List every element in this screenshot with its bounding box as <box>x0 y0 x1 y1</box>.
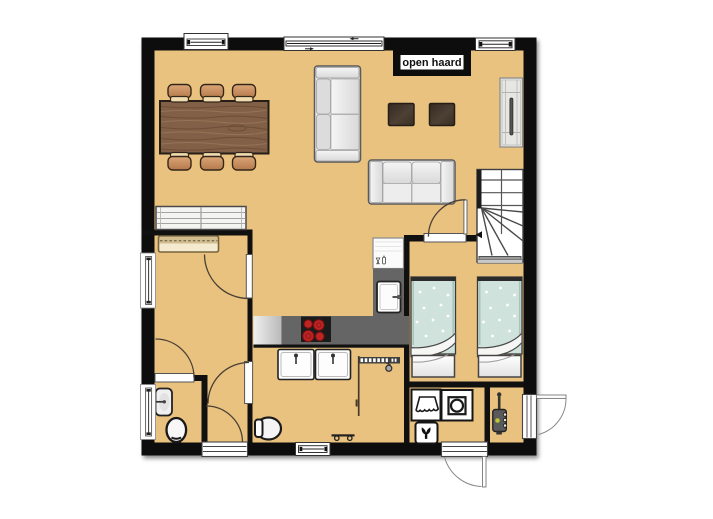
svg-text:open haard: open haard <box>402 57 461 69</box>
